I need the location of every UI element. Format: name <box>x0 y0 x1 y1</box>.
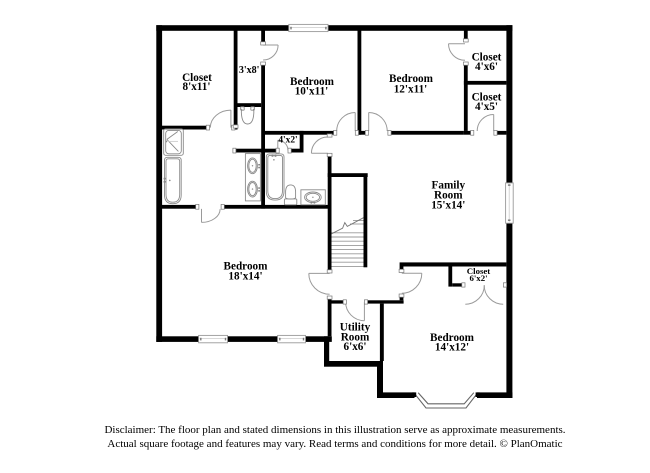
svg-text:3'x8': 3'x8' <box>239 65 260 76</box>
svg-text:14'x12': 14'x12' <box>435 342 469 354</box>
svg-text:4'x6': 4'x6' <box>475 61 498 73</box>
svg-text:4'x5': 4'x5' <box>475 101 498 113</box>
svg-text:6'x6': 6'x6' <box>344 341 367 353</box>
svg-text:4'x2': 4'x2' <box>278 136 297 146</box>
svg-text:8'x11': 8'x11' <box>183 81 211 93</box>
svg-text:15'x14': 15'x14' <box>431 200 465 212</box>
svg-text:6'x2': 6'x2' <box>469 273 487 283</box>
svg-text:12'x11': 12'x11' <box>394 83 428 95</box>
svg-text:10'x11': 10'x11' <box>295 86 329 98</box>
svg-text:18'x14': 18'x14' <box>228 271 262 283</box>
